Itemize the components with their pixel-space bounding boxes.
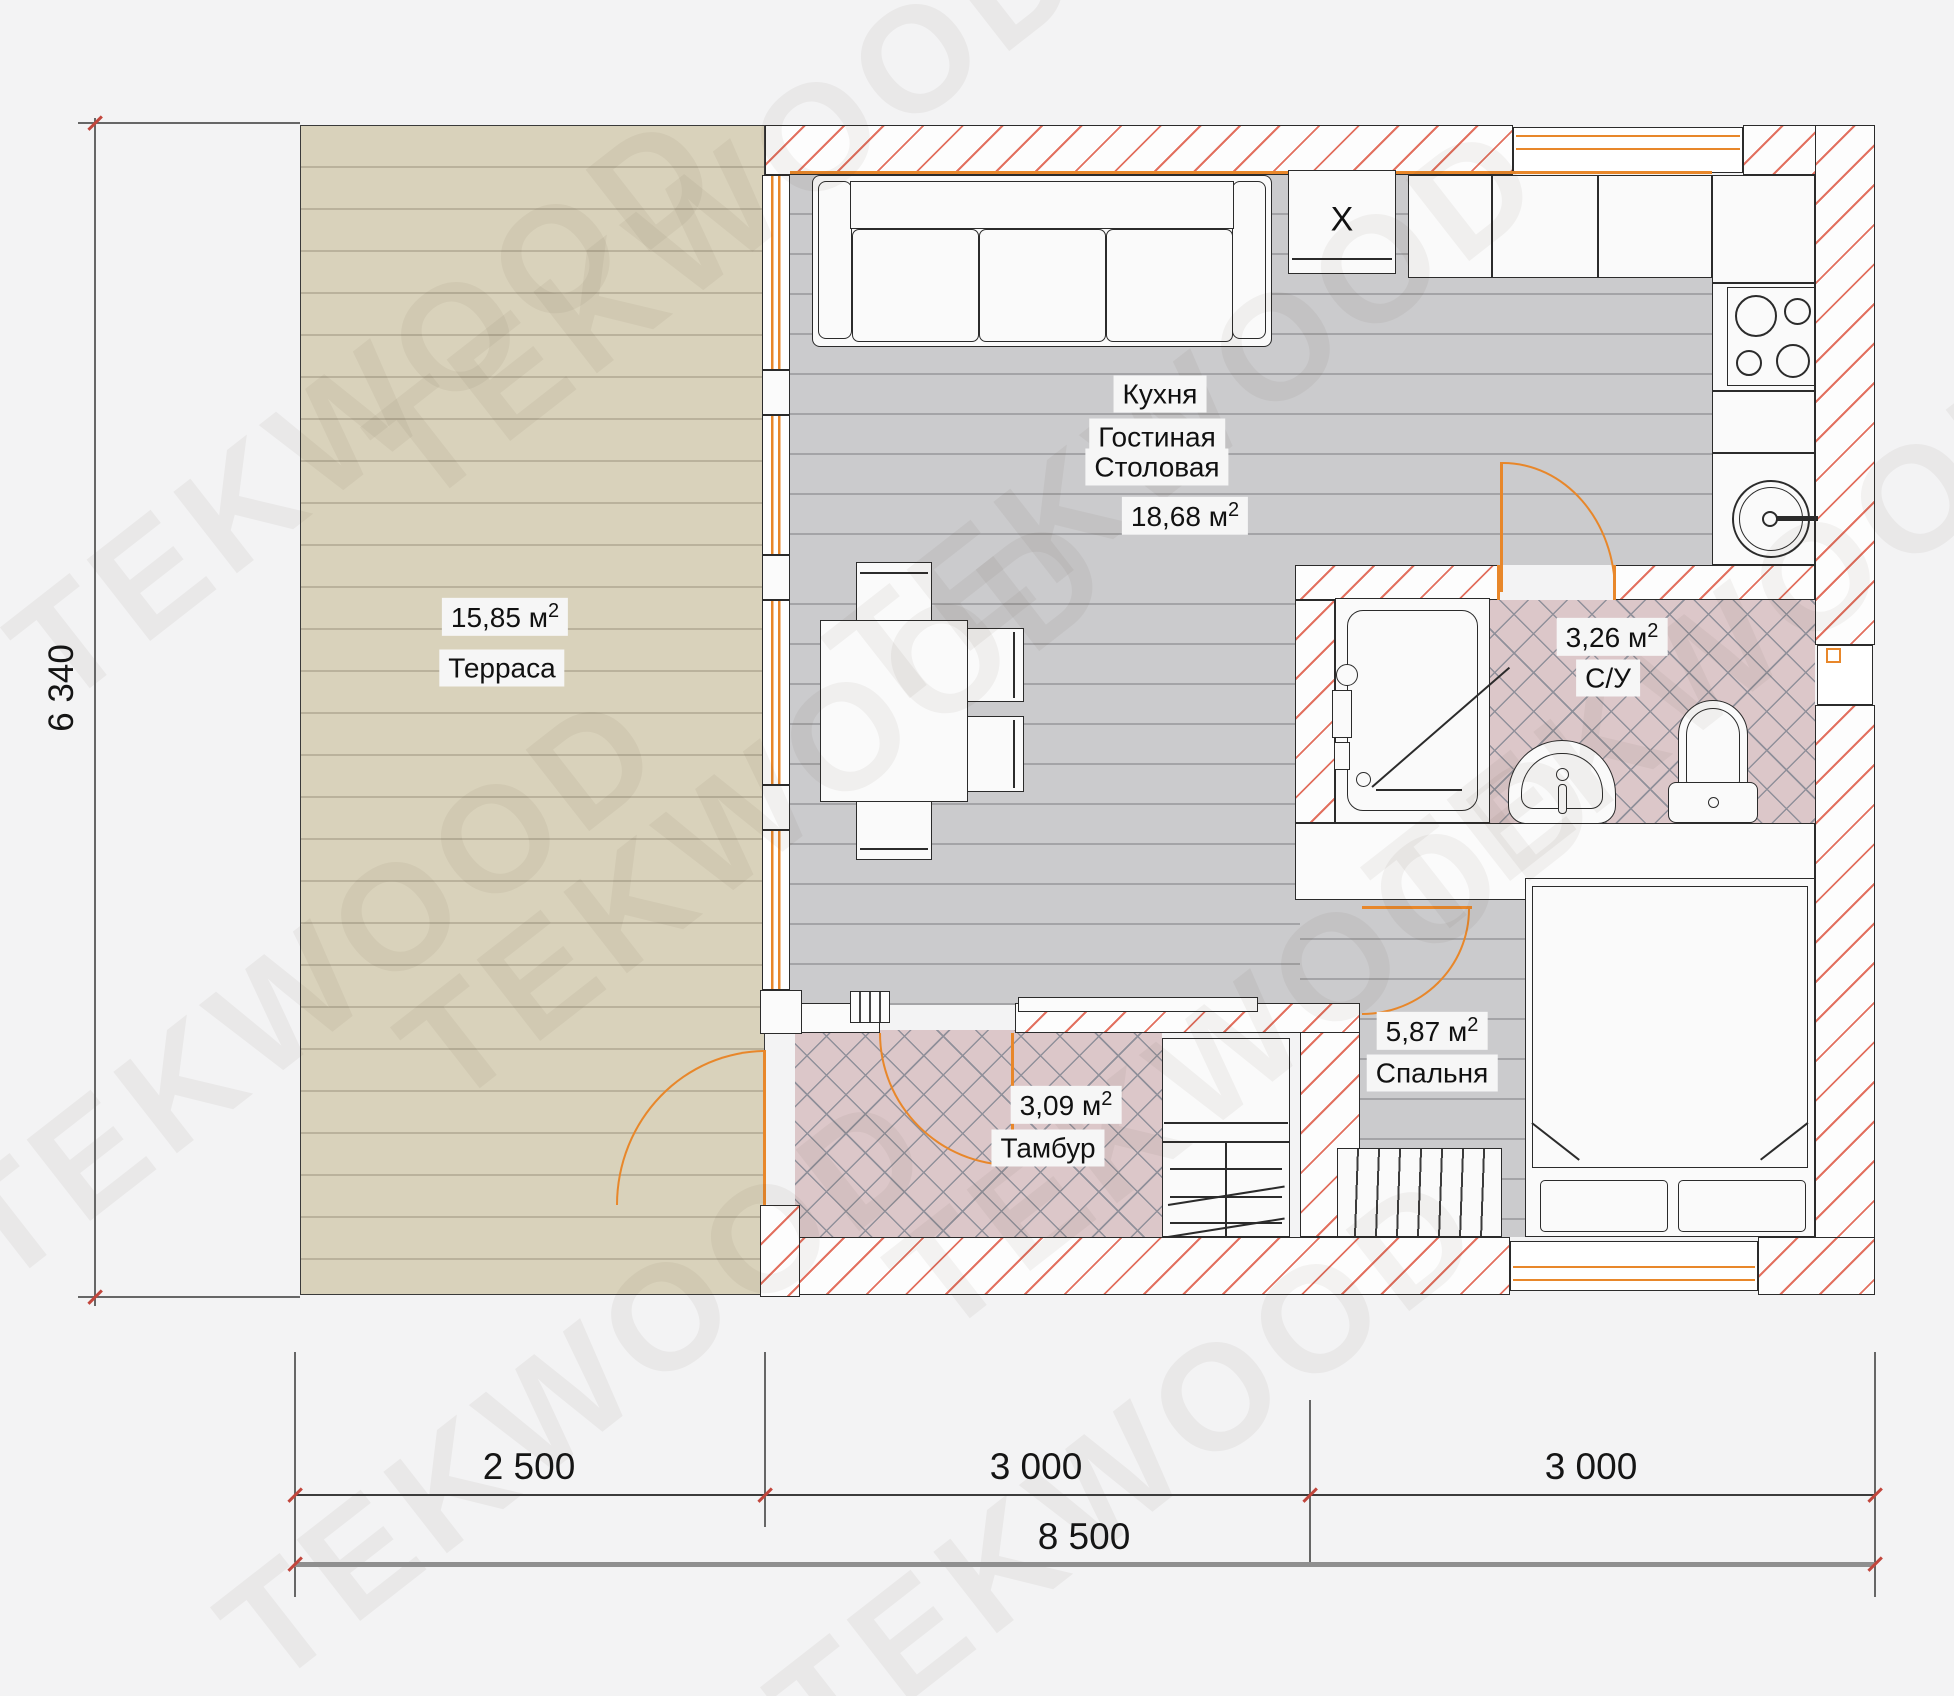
stove-burner-small: [1784, 298, 1811, 325]
kitchen-window: [1513, 127, 1743, 173]
shower-mixer-lower: [1334, 742, 1350, 770]
toilet-flush-button: [1708, 797, 1719, 808]
chair-right-upper: [966, 628, 1024, 702]
kitchen-faucet: [1776, 516, 1818, 521]
bedroom-area-label: 5,87 м2: [1377, 1012, 1488, 1050]
partition-shelf: [1018, 997, 1258, 1012]
total-width-dimension-label: 8 500: [1038, 1516, 1131, 1558]
wall-right-lower: [1815, 705, 1875, 1295]
corner-wall-post: [760, 1205, 800, 1297]
segment-dimension-label: 3 000: [1545, 1446, 1638, 1488]
vestibule-name-label: Тамбур: [991, 1130, 1104, 1167]
glazing-segment: [762, 175, 790, 370]
bathroom-name-label: С/У: [1576, 660, 1640, 697]
bathroom-wall-top-right: [1615, 565, 1815, 600]
toilet-bowl-inner: [1686, 708, 1740, 786]
area-sup: 2: [1101, 1088, 1112, 1110]
chair-backrest-line: [1013, 720, 1015, 788]
extension-line-vertical: [764, 1352, 766, 1527]
area-text: 18,68 м: [1131, 501, 1228, 532]
area-sup: 2: [548, 600, 559, 622]
floor-plan-canvas: TEKWOOD TEKWOOD TEKWOOD TEKWOOD TEKWOOD …: [0, 0, 1954, 1696]
bathroom-wall-left: [1295, 600, 1335, 823]
electrical-panel: [850, 991, 890, 1023]
counter-divider: [1712, 282, 1815, 284]
sofa-armrest-left: [818, 181, 852, 339]
counter-divider: [1712, 452, 1815, 454]
sofa-armrest-right: [1232, 181, 1266, 339]
kitchen-cabinet: [1598, 175, 1712, 278]
bathroom-area-label: 3,26 м2: [1557, 618, 1668, 656]
stove-burner-small: [1736, 350, 1762, 376]
glazing-segment: [762, 830, 790, 990]
extension-line-vertical: [1309, 1400, 1311, 1565]
dimension-line-total-width: [294, 1562, 1875, 1567]
vestibule-area-label: 3,09 м2: [1011, 1086, 1122, 1124]
kitchen-cabinet: [1492, 175, 1598, 278]
glazing-segment: [762, 600, 790, 785]
terrace-name-label: Терраса: [439, 650, 564, 687]
shower-mixer-body: [1332, 690, 1352, 738]
wall-right-upper: [1815, 125, 1875, 645]
chair-backrest-line: [860, 572, 928, 574]
closet-shelf-mark: [1170, 1168, 1282, 1170]
window-glass-bars: [1516, 135, 1740, 150]
bathroom-window: [1817, 645, 1873, 705]
dining-table: [820, 620, 968, 802]
dimension-line-height: [94, 118, 96, 1306]
window-glass-bars: [1826, 648, 1841, 663]
shower-mark-line: [1376, 789, 1462, 791]
fridge-x-mark: X: [1331, 201, 1354, 240]
window-glass-bars: [1513, 1266, 1755, 1281]
sink-tap: [1558, 784, 1567, 814]
chair-bottom: [856, 798, 932, 860]
chair-right-lower: [966, 716, 1024, 792]
kitchen-area-label: 18,68 м2: [1122, 497, 1248, 535]
bathroom-door-jamb-mark: [1613, 565, 1616, 600]
wall-bottom-right: [1758, 1237, 1875, 1295]
counter-divider: [1712, 390, 1815, 392]
stove-burner-large: [1776, 344, 1810, 378]
fridge-detail-line: [1292, 258, 1392, 260]
shower-drain: [1356, 772, 1371, 787]
chair-backrest-line: [860, 848, 928, 850]
extension-line-bottom-left: [78, 1296, 300, 1298]
wall-trim-line: [790, 171, 1712, 174]
vestibule-cabinet: [1162, 1038, 1290, 1142]
bed-pillow: [1678, 1180, 1806, 1232]
bedroom-name-label: Спальня: [1367, 1055, 1498, 1092]
wall-bottom-left: [765, 1237, 1510, 1295]
cabinet-shelf-line: [1164, 1122, 1288, 1124]
stove-burner-large: [1735, 295, 1777, 337]
sink-tap-base: [1556, 768, 1569, 781]
kitchen-cabinet: [1408, 175, 1492, 278]
bed-pillow: [1540, 1180, 1668, 1232]
height-dimension-label: 6 340: [42, 644, 82, 732]
segment-dimension-label: 2 500: [483, 1446, 576, 1488]
sofa-cushion: [1106, 229, 1233, 342]
extension-line-top-left: [78, 122, 300, 124]
sofa-cushion: [979, 229, 1106, 342]
entrance-door-jamb: [760, 990, 802, 1034]
bedroom-window: [1510, 1241, 1758, 1291]
glazing-post: [762, 370, 790, 415]
bathroom-wall-top-left: [1295, 565, 1500, 600]
segment-dimension-label: 3 000: [990, 1446, 1083, 1488]
bathroom-door-jamb-mark: [1497, 565, 1500, 600]
area-sup: 2: [1228, 499, 1239, 521]
area-sup: 2: [1467, 1014, 1478, 1036]
terrace-area-label: 15,85 м2: [442, 598, 568, 636]
area-text: 5,87 м: [1386, 1016, 1468, 1047]
bedroom-wardrobe: [1337, 1148, 1502, 1237]
chair-backrest-line: [1013, 632, 1015, 698]
sofa-backrest: [850, 181, 1234, 229]
area-sup: 2: [1647, 620, 1658, 642]
area-text: 3,26 м: [1566, 622, 1648, 653]
dimension-line-segments: [294, 1494, 1875, 1496]
kitchen-label: Кухня: [1114, 376, 1207, 413]
bed-blanket: [1532, 886, 1808, 1168]
glazing-post: [762, 785, 790, 830]
glazing-post: [762, 555, 790, 600]
dining-label: Столовая: [1085, 449, 1228, 486]
sofa-cushion: [852, 229, 979, 342]
shower-mixer-knob: [1336, 664, 1358, 686]
bedroom-door-threshold: [1300, 900, 1360, 1015]
glazing-segment: [762, 415, 790, 555]
wall-top-left: [765, 125, 1513, 175]
area-text: 3,09 м: [1020, 1090, 1102, 1121]
area-text: 15,85 м: [451, 602, 548, 633]
